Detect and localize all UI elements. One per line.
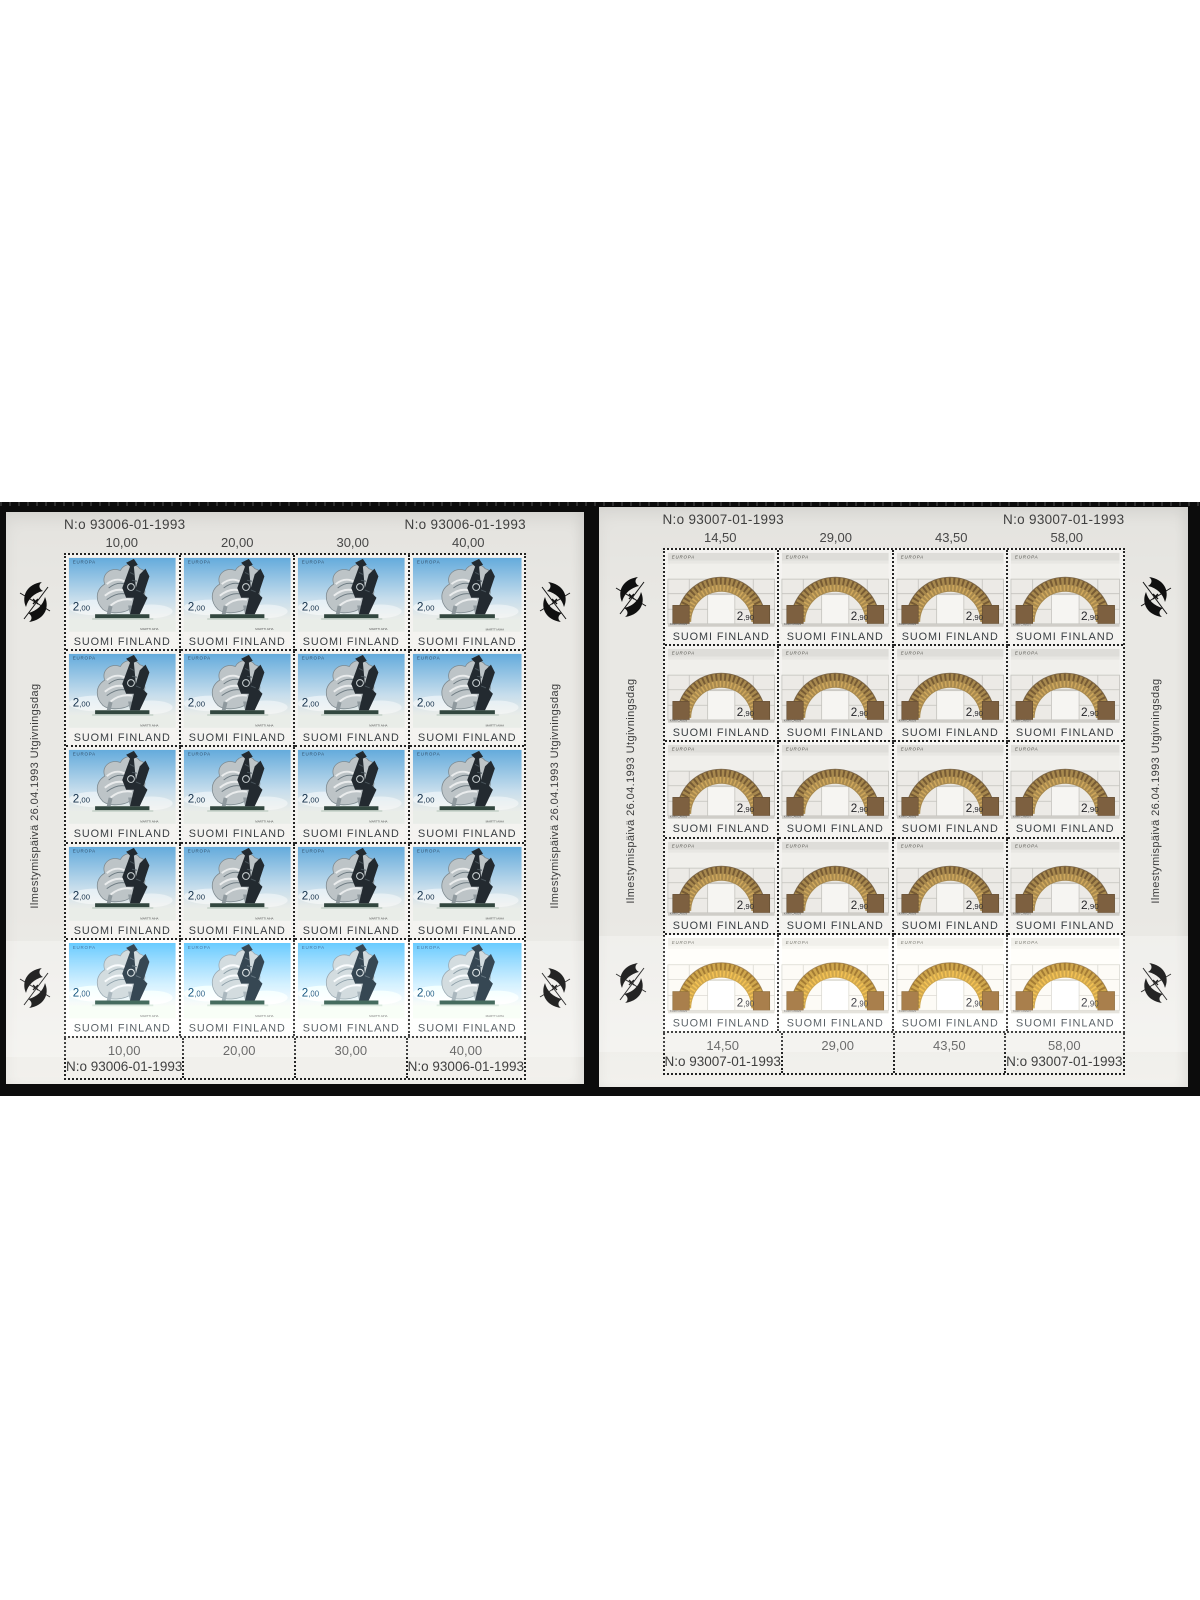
plinth-shadow bbox=[92, 907, 153, 909]
foreground bbox=[298, 811, 405, 824]
stamp-series-label: EUROPA bbox=[1015, 651, 1039, 656]
plinth-shadow bbox=[92, 618, 153, 620]
pillar-right bbox=[1098, 894, 1115, 912]
plinth-shadow bbox=[436, 907, 498, 909]
stamp-country-label: SUOMI FINLAND bbox=[74, 732, 171, 744]
stamp: EUROPA 2,90 KARI CAVEN SUOMI FINLAND bbox=[779, 742, 894, 838]
artist-signature: KARI CAVEN bbox=[1013, 1009, 1031, 1013]
footer-row: 14,50N:o 93007-01-199329,0043,5058,00N:o… bbox=[663, 1033, 1125, 1075]
doorway bbox=[822, 787, 849, 816]
plinth bbox=[95, 614, 149, 618]
stamp: EUROPA 2,90 KARI CAVEN SUOMI FINLAND bbox=[894, 550, 1009, 646]
stamp-country-label: SUOMI FINLAND bbox=[787, 727, 884, 739]
foreground bbox=[412, 619, 521, 632]
ceiling-streak bbox=[667, 657, 774, 660]
stamp-series-label: EUROPA bbox=[73, 560, 96, 565]
foreground bbox=[412, 715, 521, 728]
pillar-left bbox=[672, 991, 688, 1010]
stamp: EUROPA 2,00 MARTTI AIHA SUOMI FINLAND bbox=[181, 844, 296, 940]
stamp: EUROPA 2,00 MARTTI AIHA SUOMI FINLAND bbox=[66, 555, 181, 651]
stamp-artwork: EUROPA 2,00 MARTTI AIHA SUOMI FINLAND bbox=[66, 940, 179, 1036]
plate-number-bottom: N:o 93007-01-1993 bbox=[665, 1054, 781, 1069]
artist-signature: KARI CAVEN bbox=[1013, 718, 1031, 722]
header-values-row: 14,5029,0043,5058,00 bbox=[663, 530, 1125, 547]
stamp-series-label: EUROPA bbox=[671, 651, 694, 656]
stamp-series-label: EUROPA bbox=[73, 848, 96, 853]
stamp-country-label: SUOMI FINLAND bbox=[787, 631, 884, 643]
stamp: EUROPA 2,00 MARTTI AIHA SUOMI FINLAND bbox=[66, 747, 181, 843]
stamp: EUROPA 2,00 MARTTI AIHA SUOMI FINLAND bbox=[410, 555, 525, 651]
stamp-series-label: EUROPA bbox=[1015, 940, 1039, 945]
stamp-series-label: EUROPA bbox=[671, 843, 694, 848]
plinth bbox=[95, 1000, 149, 1004]
artist-signature: MARTTI AIHA bbox=[485, 820, 503, 824]
ceiling-streak bbox=[1011, 753, 1120, 756]
doorway bbox=[1051, 980, 1079, 1010]
stamp: EUROPA 2,00 MARTTI AIHA SUOMI FINLAND bbox=[410, 940, 525, 1036]
foreground bbox=[412, 908, 521, 921]
pillar-right bbox=[982, 702, 998, 720]
plinth bbox=[210, 807, 264, 811]
stamp-artwork: EUROPA 2,00 MARTTI AIHA SUOMI FINLAND bbox=[295, 940, 408, 1036]
column-total: 43,50 bbox=[933, 1038, 966, 1053]
stamp-artwork: EUROPA 2,00 MARTTI AIHA SUOMI FINLAND bbox=[295, 555, 408, 649]
stamp-series-label: EUROPA bbox=[1015, 843, 1039, 848]
right-selvage: Ilmestymispäivä 26.04.1993 Utgivningsdag bbox=[1125, 548, 1189, 1033]
plinth-shadow bbox=[436, 618, 498, 620]
plinth bbox=[439, 807, 494, 811]
stamp: EUROPA 2,90 KARI CAVEN SUOMI FINLAND bbox=[1008, 646, 1123, 742]
stamp-country-label: SUOMI FINLAND bbox=[1016, 727, 1115, 739]
pillar-right bbox=[1098, 702, 1115, 720]
stamp-series-label: EUROPA bbox=[302, 656, 325, 661]
stamp-series-label: EUROPA bbox=[1015, 747, 1039, 752]
stamp-artwork: EUROPA 2,90 KARI CAVEN SUOMI FINLAND bbox=[665, 839, 778, 933]
pillar-left bbox=[1016, 894, 1033, 912]
sheet-ornament-icon bbox=[18, 965, 52, 1011]
artist-signature: KARI CAVEN bbox=[898, 622, 915, 626]
doorway bbox=[707, 883, 734, 912]
stamp-series-label: EUROPA bbox=[416, 560, 440, 565]
doorway bbox=[1051, 691, 1079, 720]
plate-number-top-right: N:o 93007-01-1993 bbox=[1003, 512, 1124, 530]
ceiling-streak bbox=[1011, 561, 1120, 564]
ceiling-streak bbox=[896, 753, 1003, 756]
plinth-shadow bbox=[207, 618, 268, 620]
stamp-country-label: SUOMI FINLAND bbox=[672, 919, 769, 931]
stamp-sheet-2-00: N:o 93006-01-1993 N:o 93006-01-1993 10,0… bbox=[6, 512, 584, 1084]
doorway bbox=[822, 691, 849, 720]
pillar-left bbox=[787, 702, 803, 720]
pillar-right bbox=[867, 894, 883, 912]
pillar-right bbox=[753, 798, 769, 816]
stamp-series-label: EUROPA bbox=[786, 940, 809, 945]
stamp-artwork: EUROPA 2,90 KARI CAVEN SUOMI FINLAND bbox=[779, 839, 892, 933]
plinth bbox=[95, 710, 149, 714]
artist-signature: KARI CAVEN bbox=[784, 622, 801, 626]
artist-signature: MARTTI AIHA bbox=[255, 723, 273, 727]
artist-signature: KARI CAVEN bbox=[669, 815, 686, 819]
artist-signature: KARI CAVEN bbox=[669, 622, 686, 626]
stamp-artwork: EUROPA 2,00 MARTTI AIHA SUOMI FINLAND bbox=[295, 747, 408, 841]
stamp-series-label: EUROPA bbox=[187, 656, 210, 661]
stamp: EUROPA 2,90 KARI CAVEN SUOMI FINLAND bbox=[665, 550, 780, 646]
ceiling-streak bbox=[1011, 946, 1120, 949]
column-total: 29,00 bbox=[821, 1038, 854, 1053]
stamp-artwork: EUROPA 2,90 KARI CAVEN SUOMI FINLAND bbox=[779, 742, 892, 836]
stamp-series-label: EUROPA bbox=[900, 555, 923, 560]
plinth-shadow bbox=[321, 1004, 382, 1006]
plinth bbox=[324, 903, 378, 907]
plinth-shadow bbox=[436, 811, 498, 813]
doorway bbox=[936, 595, 963, 624]
stamp-sheet-2-90: N:o 93007-01-1993 N:o 93007-01-1993 14,5… bbox=[599, 507, 1188, 1087]
stamp-country-label: SUOMI FINLAND bbox=[901, 631, 998, 643]
artist-signature: MARTTI AIHA bbox=[140, 723, 158, 727]
stamp-country-label: SUOMI FINLAND bbox=[74, 636, 171, 648]
issue-date-text: Ilmestymispäivä 26.04.1993 Utgivningsdag bbox=[1150, 678, 1162, 903]
stamp-series-label: EUROPA bbox=[900, 940, 923, 945]
stamp-artwork: EUROPA 2,90 KARI CAVEN SUOMI FINLAND bbox=[894, 646, 1007, 740]
stamp: EUROPA 2,00 MARTTI AIHA SUOMI FINLAND bbox=[66, 844, 181, 940]
stamp-artwork: EUROPA 2,00 MARTTI AIHA SUOMI FINLAND bbox=[66, 844, 179, 938]
doorway bbox=[707, 980, 734, 1010]
stamp-country-label: SUOMI FINLAND bbox=[1016, 1018, 1115, 1030]
stamp: EUROPA 2,00 MARTTI AIHA SUOMI FINLAND bbox=[295, 747, 410, 843]
stamp: EUROPA 2,90 KARI CAVEN SUOMI FINLAND bbox=[779, 550, 894, 646]
sheet-ornament-icon bbox=[538, 579, 572, 625]
foreground bbox=[298, 908, 405, 921]
stamp: EUROPA 2,90 KARI CAVEN SUOMI FINLAND bbox=[1008, 550, 1123, 646]
stamp-country-label: SUOMI FINLAND bbox=[188, 636, 285, 648]
pillar-left bbox=[901, 894, 917, 912]
ceiling-streak bbox=[896, 561, 1003, 564]
stamp-artwork: EUROPA 2,00 MARTTI AIHA SUOMI FINLAND bbox=[295, 651, 408, 745]
stamp-country-label: SUOMI FINLAND bbox=[303, 924, 400, 936]
stamp-artwork: EUROPA 2,90 KARI CAVEN SUOMI FINLAND bbox=[894, 550, 1007, 644]
pillar-left bbox=[787, 798, 803, 816]
plinth bbox=[95, 903, 149, 907]
stamp-country-label: SUOMI FINLAND bbox=[901, 1017, 998, 1029]
pillar-left bbox=[1016, 605, 1033, 623]
foreground bbox=[69, 619, 176, 632]
sheet-ornament-icon bbox=[614, 960, 648, 1006]
stamp-series-label: EUROPA bbox=[73, 656, 96, 661]
artist-signature: MARTTI AIHA bbox=[369, 820, 387, 824]
plinth bbox=[210, 710, 264, 714]
stamp-artwork: EUROPA 2,00 MARTTI AIHA SUOMI FINLAND bbox=[181, 940, 294, 1036]
column-total: 40,00 bbox=[450, 1043, 483, 1058]
stamp: EUROPA 2,90 KARI CAVEN SUOMI FINLAND bbox=[779, 646, 894, 742]
stamp: EUROPA 2,00 MARTTI AIHA SUOMI FINLAND bbox=[66, 940, 181, 1036]
doorway bbox=[707, 595, 734, 624]
stamp: EUROPA 2,90 KARI CAVEN SUOMI FINLAND bbox=[894, 646, 1009, 742]
plinth-shadow bbox=[436, 714, 498, 716]
artist-signature: MARTTI AIHA bbox=[255, 820, 273, 824]
stamp-country-label: SUOMI FINLAND bbox=[672, 1017, 769, 1029]
stamp-artwork: EUROPA 2,90 KARI CAVEN SUOMI FINLAND bbox=[665, 935, 778, 1031]
stamp: EUROPA 2,00 MARTTI AIHA SUOMI FINLAND bbox=[181, 940, 296, 1036]
artist-signature: MARTTI AIHA bbox=[255, 1014, 273, 1018]
issue-date-text: Ilmestymispäivä 26.04.1993 Utgivningsdag bbox=[625, 678, 637, 903]
plate-number-top-left: N:o 93006-01-1993 bbox=[64, 517, 185, 535]
stamp-country-label: SUOMI FINLAND bbox=[417, 732, 516, 744]
left-selvage: Ilmestymispäivä 26.04.1993 Utgivningsdag bbox=[6, 553, 64, 1038]
pillar-left bbox=[672, 894, 688, 912]
stamp-series-label: EUROPA bbox=[187, 752, 210, 757]
plinth-shadow bbox=[321, 618, 382, 620]
foreground bbox=[298, 619, 405, 632]
stamp-country-label: SUOMI FINLAND bbox=[303, 828, 400, 840]
doorway bbox=[1051, 595, 1079, 624]
pillar-left bbox=[672, 702, 688, 720]
plinth-shadow bbox=[92, 714, 153, 716]
stamp-artwork: EUROPA 2,00 MARTTI AIHA SUOMI FINLAND bbox=[181, 555, 294, 649]
stamp: EUROPA 2,00 MARTTI AIHA SUOMI FINLAND bbox=[181, 555, 296, 651]
pillar-left bbox=[901, 702, 917, 720]
stamp-artwork: EUROPA 2,00 MARTTI AIHA SUOMI FINLAND bbox=[66, 747, 179, 841]
artist-signature: MARTTI AIHA bbox=[485, 723, 503, 727]
doorway bbox=[707, 691, 734, 720]
sheet-ornament-icon bbox=[1139, 960, 1173, 1006]
footer-cell: 30,00 bbox=[296, 1038, 408, 1078]
doorway bbox=[936, 691, 963, 720]
pillar-right bbox=[1098, 991, 1115, 1010]
stamp-artwork: EUROPA 2,00 MARTTI AIHA SUOMI FINLAND bbox=[410, 844, 525, 938]
column-total: 10,00 bbox=[108, 1043, 141, 1058]
stamp-artwork: EUROPA 2,90 KARI CAVEN SUOMI FINLAND bbox=[779, 646, 892, 740]
stamp-artwork: EUROPA 2,90 KARI CAVEN SUOMI FINLAND bbox=[665, 646, 778, 740]
artist-signature: KARI CAVEN bbox=[898, 815, 915, 819]
foreground bbox=[412, 1005, 521, 1018]
doorway bbox=[936, 980, 963, 1010]
foreground bbox=[69, 811, 176, 824]
stamp-country-label: SUOMI FINLAND bbox=[901, 919, 998, 931]
foreground bbox=[69, 715, 176, 728]
pillar-right bbox=[753, 991, 769, 1010]
foreground bbox=[69, 908, 176, 921]
stamp-artwork: EUROPA 2,00 MARTTI AIHA SUOMI FINLAND bbox=[410, 940, 525, 1036]
stamp-series-label: EUROPA bbox=[73, 752, 96, 757]
stamp-artwork: EUROPA 2,90 KARI CAVEN SUOMI FINLAND bbox=[1008, 839, 1123, 933]
sheet-ornament-icon bbox=[538, 579, 572, 625]
stamp-artwork: EUROPA 2,90 KARI CAVEN SUOMI FINLAND bbox=[894, 935, 1007, 1031]
stamp-artwork: EUROPA 2,00 MARTTI AIHA SUOMI FINLAND bbox=[181, 747, 294, 841]
foreground bbox=[183, 619, 290, 632]
right-selvage: Ilmestymispäivä 26.04.1993 Utgivningsdag bbox=[526, 553, 584, 1038]
stamp-artwork: EUROPA 2,00 MARTTI AIHA SUOMI FINLAND bbox=[410, 555, 525, 649]
stamp-artwork: EUROPA 2,90 KARI CAVEN SUOMI FINLAND bbox=[779, 935, 892, 1031]
sheet-ornament-icon bbox=[538, 965, 572, 1011]
stamp: EUROPA 2,00 MARTTI AIHA SUOMI FINLAND bbox=[295, 555, 410, 651]
stamp: EUROPA 2,00 MARTTI AIHA SUOMI FINLAND bbox=[181, 747, 296, 843]
foreground bbox=[183, 811, 290, 824]
stamp-series-label: EUROPA bbox=[416, 752, 440, 757]
stamp-artwork: EUROPA 2,90 KARI CAVEN SUOMI FINLAND bbox=[665, 550, 778, 644]
plinth-shadow bbox=[207, 1004, 268, 1006]
stamp-series-label: EUROPA bbox=[187, 848, 210, 853]
pillar-right bbox=[867, 605, 883, 623]
stamp-country-label: SUOMI FINLAND bbox=[1016, 920, 1115, 932]
footer-cell: 40,00N:o 93006-01-1993 bbox=[408, 1038, 524, 1078]
issue-date-text: Ilmestymispäivä 26.04.1993 Utgivningsdag bbox=[29, 683, 41, 908]
pillar-right bbox=[982, 894, 998, 912]
stamp-country-label: SUOMI FINLAND bbox=[787, 823, 884, 835]
doorway bbox=[822, 595, 849, 624]
stamp-country-label: SUOMI FINLAND bbox=[188, 732, 285, 744]
ceiling-streak bbox=[667, 753, 774, 756]
stamp-country-label: SUOMI FINLAND bbox=[417, 636, 516, 648]
stamp-series-label: EUROPA bbox=[786, 651, 809, 656]
stamp-artwork: EUROPA 2,00 MARTTI AIHA SUOMI FINLAND bbox=[66, 651, 179, 745]
stamp-artwork: EUROPA 2,90 KARI CAVEN SUOMI FINLAND bbox=[1008, 935, 1123, 1031]
column-total: 58,00 bbox=[1009, 530, 1125, 547]
stamp-country-label: SUOMI FINLAND bbox=[303, 732, 400, 744]
stamp-series-label: EUROPA bbox=[1015, 555, 1039, 560]
stamp: EUROPA 2,90 KARI CAVEN SUOMI FINLAND bbox=[1008, 839, 1123, 935]
plinth-shadow bbox=[92, 811, 153, 813]
pillar-right bbox=[1098, 798, 1115, 816]
stamp-series-label: EUROPA bbox=[671, 747, 694, 752]
artist-signature: MARTTI AIHA bbox=[369, 627, 387, 631]
stamp-country-label: SUOMI FINLAND bbox=[417, 925, 516, 937]
stamp-series-label: EUROPA bbox=[187, 945, 210, 950]
stamp-country-label: SUOMI FINLAND bbox=[901, 727, 998, 739]
sheet-ornament-icon bbox=[1139, 960, 1173, 1006]
pillar-right bbox=[982, 605, 998, 623]
stamp-artwork: EUROPA 2,90 KARI CAVEN SUOMI FINLAND bbox=[1008, 646, 1123, 740]
pillar-right bbox=[753, 702, 769, 720]
ceiling-streak bbox=[896, 657, 1003, 660]
doorway bbox=[822, 980, 849, 1010]
header-values-row: 10,0020,0030,0040,00 bbox=[64, 535, 526, 552]
plinth bbox=[439, 614, 494, 618]
pillar-right bbox=[867, 798, 883, 816]
ceiling-streak bbox=[1011, 657, 1120, 660]
column-total: 20,00 bbox=[223, 1043, 256, 1058]
foreground bbox=[69, 1005, 176, 1018]
stamp-sheets-scan: N:o 93006-01-1993 N:o 93006-01-1993 10,0… bbox=[0, 0, 1200, 1600]
stamp-series-label: EUROPA bbox=[416, 945, 440, 950]
doorway bbox=[1051, 883, 1079, 912]
artist-signature: KARI CAVEN bbox=[898, 1009, 915, 1013]
stamp: EUROPA 2,00 MARTTI AIHA SUOMI FINLAND bbox=[181, 651, 296, 747]
stamp-artwork: EUROPA 2,00 MARTTI AIHA SUOMI FINLAND bbox=[410, 747, 525, 841]
foreground bbox=[298, 1005, 405, 1018]
pillar-left bbox=[787, 894, 803, 912]
stamp: EUROPA 2,00 MARTTI AIHA SUOMI FINLAND bbox=[66, 651, 181, 747]
pillar-right bbox=[982, 991, 998, 1010]
footer-cell: 20,00 bbox=[184, 1038, 296, 1078]
stamp: EUROPA 2,90 KARI CAVEN SUOMI FINLAND bbox=[894, 839, 1009, 935]
pillar-right bbox=[867, 702, 883, 720]
artist-signature: KARI CAVEN bbox=[784, 815, 801, 819]
plinth-shadow bbox=[321, 907, 382, 909]
plinth bbox=[324, 614, 378, 618]
stamp-series-label: EUROPA bbox=[900, 651, 923, 656]
sheet-ornament-icon bbox=[18, 579, 52, 625]
pillar-right bbox=[982, 798, 998, 816]
pillar-left bbox=[1016, 798, 1033, 816]
stamp-country-label: SUOMI FINLAND bbox=[74, 828, 171, 840]
artist-signature: MARTTI AIHA bbox=[140, 627, 158, 631]
pillar-left bbox=[787, 605, 803, 623]
plinth-shadow bbox=[92, 1004, 153, 1006]
stamp-series-label: EUROPA bbox=[302, 945, 325, 950]
sheet-ornament-icon bbox=[614, 574, 648, 620]
column-total: 30,00 bbox=[335, 1043, 368, 1058]
stamp-country-label: SUOMI FINLAND bbox=[417, 1023, 516, 1035]
column-total: 20,00 bbox=[180, 535, 296, 552]
stamp-series-label: EUROPA bbox=[302, 752, 325, 757]
ceiling-streak bbox=[896, 849, 1003, 852]
foreground bbox=[183, 1005, 290, 1018]
stamp-series-label: EUROPA bbox=[900, 747, 923, 752]
stamp-artwork: EUROPA 2,90 KARI CAVEN SUOMI FINLAND bbox=[779, 550, 892, 644]
stamp-series-label: EUROPA bbox=[671, 940, 694, 945]
stamp-series-label: EUROPA bbox=[671, 555, 694, 560]
stamp-grid: EUROPA 2,90 KARI CAVEN SUOMI FINLAND EUR… bbox=[663, 548, 1125, 1033]
column-total: 30,00 bbox=[295, 535, 411, 552]
doorway bbox=[822, 883, 849, 912]
artist-signature: MARTTI AIHA bbox=[140, 820, 158, 824]
plate-number-row: N:o 93006-01-1993 N:o 93006-01-1993 bbox=[64, 517, 526, 535]
pillar-left bbox=[1016, 991, 1033, 1010]
stamp: EUROPA 2,90 KARI CAVEN SUOMI FINLAND bbox=[1008, 742, 1123, 838]
artist-signature: MARTTI AIHA bbox=[140, 1014, 158, 1018]
stamp: EUROPA 2,00 MARTTI AIHA SUOMI FINLAND bbox=[295, 940, 410, 1036]
stamp-country-label: SUOMI FINLAND bbox=[672, 823, 769, 835]
doorway bbox=[1051, 787, 1079, 816]
stamp-series-label: EUROPA bbox=[302, 848, 325, 853]
artist-signature: KARI CAVEN bbox=[784, 911, 801, 915]
stamp-country-label: SUOMI FINLAND bbox=[188, 1022, 285, 1034]
stamp-country-label: SUOMI FINLAND bbox=[188, 828, 285, 840]
plate-number-bottom: N:o 93007-01-1993 bbox=[1006, 1054, 1122, 1069]
pillar-left bbox=[672, 798, 688, 816]
pillar-left bbox=[672, 605, 688, 623]
stamp-artwork: EUROPA 2,90 KARI CAVEN SUOMI FINLAND bbox=[894, 742, 1007, 836]
pillar-left bbox=[787, 991, 803, 1010]
ceiling-streak bbox=[1011, 849, 1120, 852]
stamp: EUROPA 2,90 KARI CAVEN SUOMI FINLAND bbox=[1008, 935, 1123, 1031]
stamp-grid: EUROPA 2,00 MARTTI AIHA SUOMI FINLAND EU… bbox=[64, 553, 526, 1038]
ceiling-streak bbox=[782, 946, 889, 949]
artist-signature: MARTTI AIHA bbox=[485, 627, 503, 631]
stamp-series-label: EUROPA bbox=[416, 848, 440, 853]
stamp-country-label: SUOMI FINLAND bbox=[787, 1017, 884, 1029]
stamp-country-label: SUOMI FINLAND bbox=[188, 924, 285, 936]
pillar-left bbox=[1016, 702, 1033, 720]
artist-signature: MARTTI AIHA bbox=[255, 916, 273, 920]
artist-signature: KARI CAVEN bbox=[669, 718, 686, 722]
artist-signature: KARI CAVEN bbox=[1013, 815, 1031, 819]
plinth bbox=[324, 807, 378, 811]
ceiling-streak bbox=[896, 946, 1003, 949]
stamp-artwork: EUROPA 2,90 KARI CAVEN SUOMI FINLAND bbox=[665, 742, 778, 836]
stamp: EUROPA 2,90 KARI CAVEN SUOMI FINLAND bbox=[665, 742, 780, 838]
artist-signature: KARI CAVEN bbox=[898, 718, 915, 722]
artist-signature: KARI CAVEN bbox=[669, 1009, 686, 1013]
plate-number-top-left: N:o 93007-01-1993 bbox=[663, 512, 784, 530]
ceiling-streak bbox=[667, 849, 774, 852]
artist-signature: MARTTI AIHA bbox=[140, 916, 158, 920]
stamp-country-label: SUOMI FINLAND bbox=[672, 631, 769, 643]
sheet-ornament-icon bbox=[614, 574, 648, 620]
doorway bbox=[936, 883, 963, 912]
sheet-ornament-icon bbox=[614, 960, 648, 1006]
stamp: EUROPA 2,00 MARTTI AIHA SUOMI FINLAND bbox=[295, 651, 410, 747]
